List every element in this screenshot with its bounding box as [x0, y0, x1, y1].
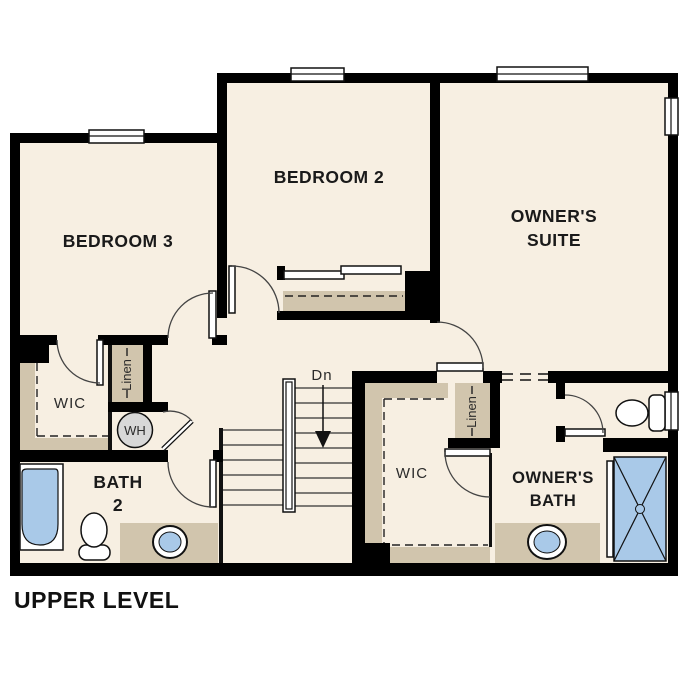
wic-left-shelf-bottom	[20, 438, 112, 452]
shower-icon	[607, 457, 666, 561]
wic-left-label: WIC	[54, 395, 86, 412]
floorplan-upper-level: Dn	[0, 0, 687, 687]
wic-right-shelf-top	[365, 383, 448, 398]
stairs-down-label: Dn	[311, 367, 332, 384]
linen-left-label: Linen	[119, 359, 134, 391]
sink-owners-icon	[528, 525, 566, 559]
toilet-icon	[79, 513, 110, 560]
water-heater-label: WH	[124, 423, 146, 438]
water-heater-icon: WH	[118, 413, 153, 448]
linen-right-label: Linen	[464, 396, 479, 428]
window-water-closet	[665, 392, 678, 430]
bath2-label-line2: 2	[113, 495, 123, 515]
bedroom2-label: BEDROOM 2	[274, 167, 384, 187]
plan-title: UPPER LEVEL	[14, 587, 179, 613]
cased-opening-dashed	[502, 371, 548, 383]
wic-right-shelf-bottom	[390, 547, 490, 563]
window-bedroom2	[291, 68, 344, 81]
bathtub-icon	[20, 464, 63, 550]
owners-suite-label-line1: OWNER'S	[511, 206, 597, 226]
window-owners-suite-right	[665, 98, 678, 135]
linen-left-partition	[108, 345, 112, 452]
bath2-stair-partition	[219, 428, 223, 563]
bath2-label-line1: BATH	[93, 472, 142, 492]
wic-right-bath-partition	[489, 453, 492, 547]
bedroom3-label: BEDROOM 3	[63, 231, 173, 251]
owners-suite-label-line2: SUITE	[527, 230, 581, 250]
stair-railing	[283, 379, 295, 512]
owners-bath-label-line2: BATH	[530, 492, 577, 510]
floorplan-canvas: Dn	[0, 0, 687, 687]
owners-bath-label-line1: OWNER'S	[512, 469, 594, 487]
wic-right-shelf-side	[365, 383, 382, 547]
bedroom2-closet-shelf	[283, 291, 405, 312]
wic-right-label: WIC	[396, 465, 428, 482]
sink-icon	[153, 526, 187, 558]
window-owners-suite-top	[497, 67, 588, 81]
window-bedroom3	[89, 130, 144, 143]
